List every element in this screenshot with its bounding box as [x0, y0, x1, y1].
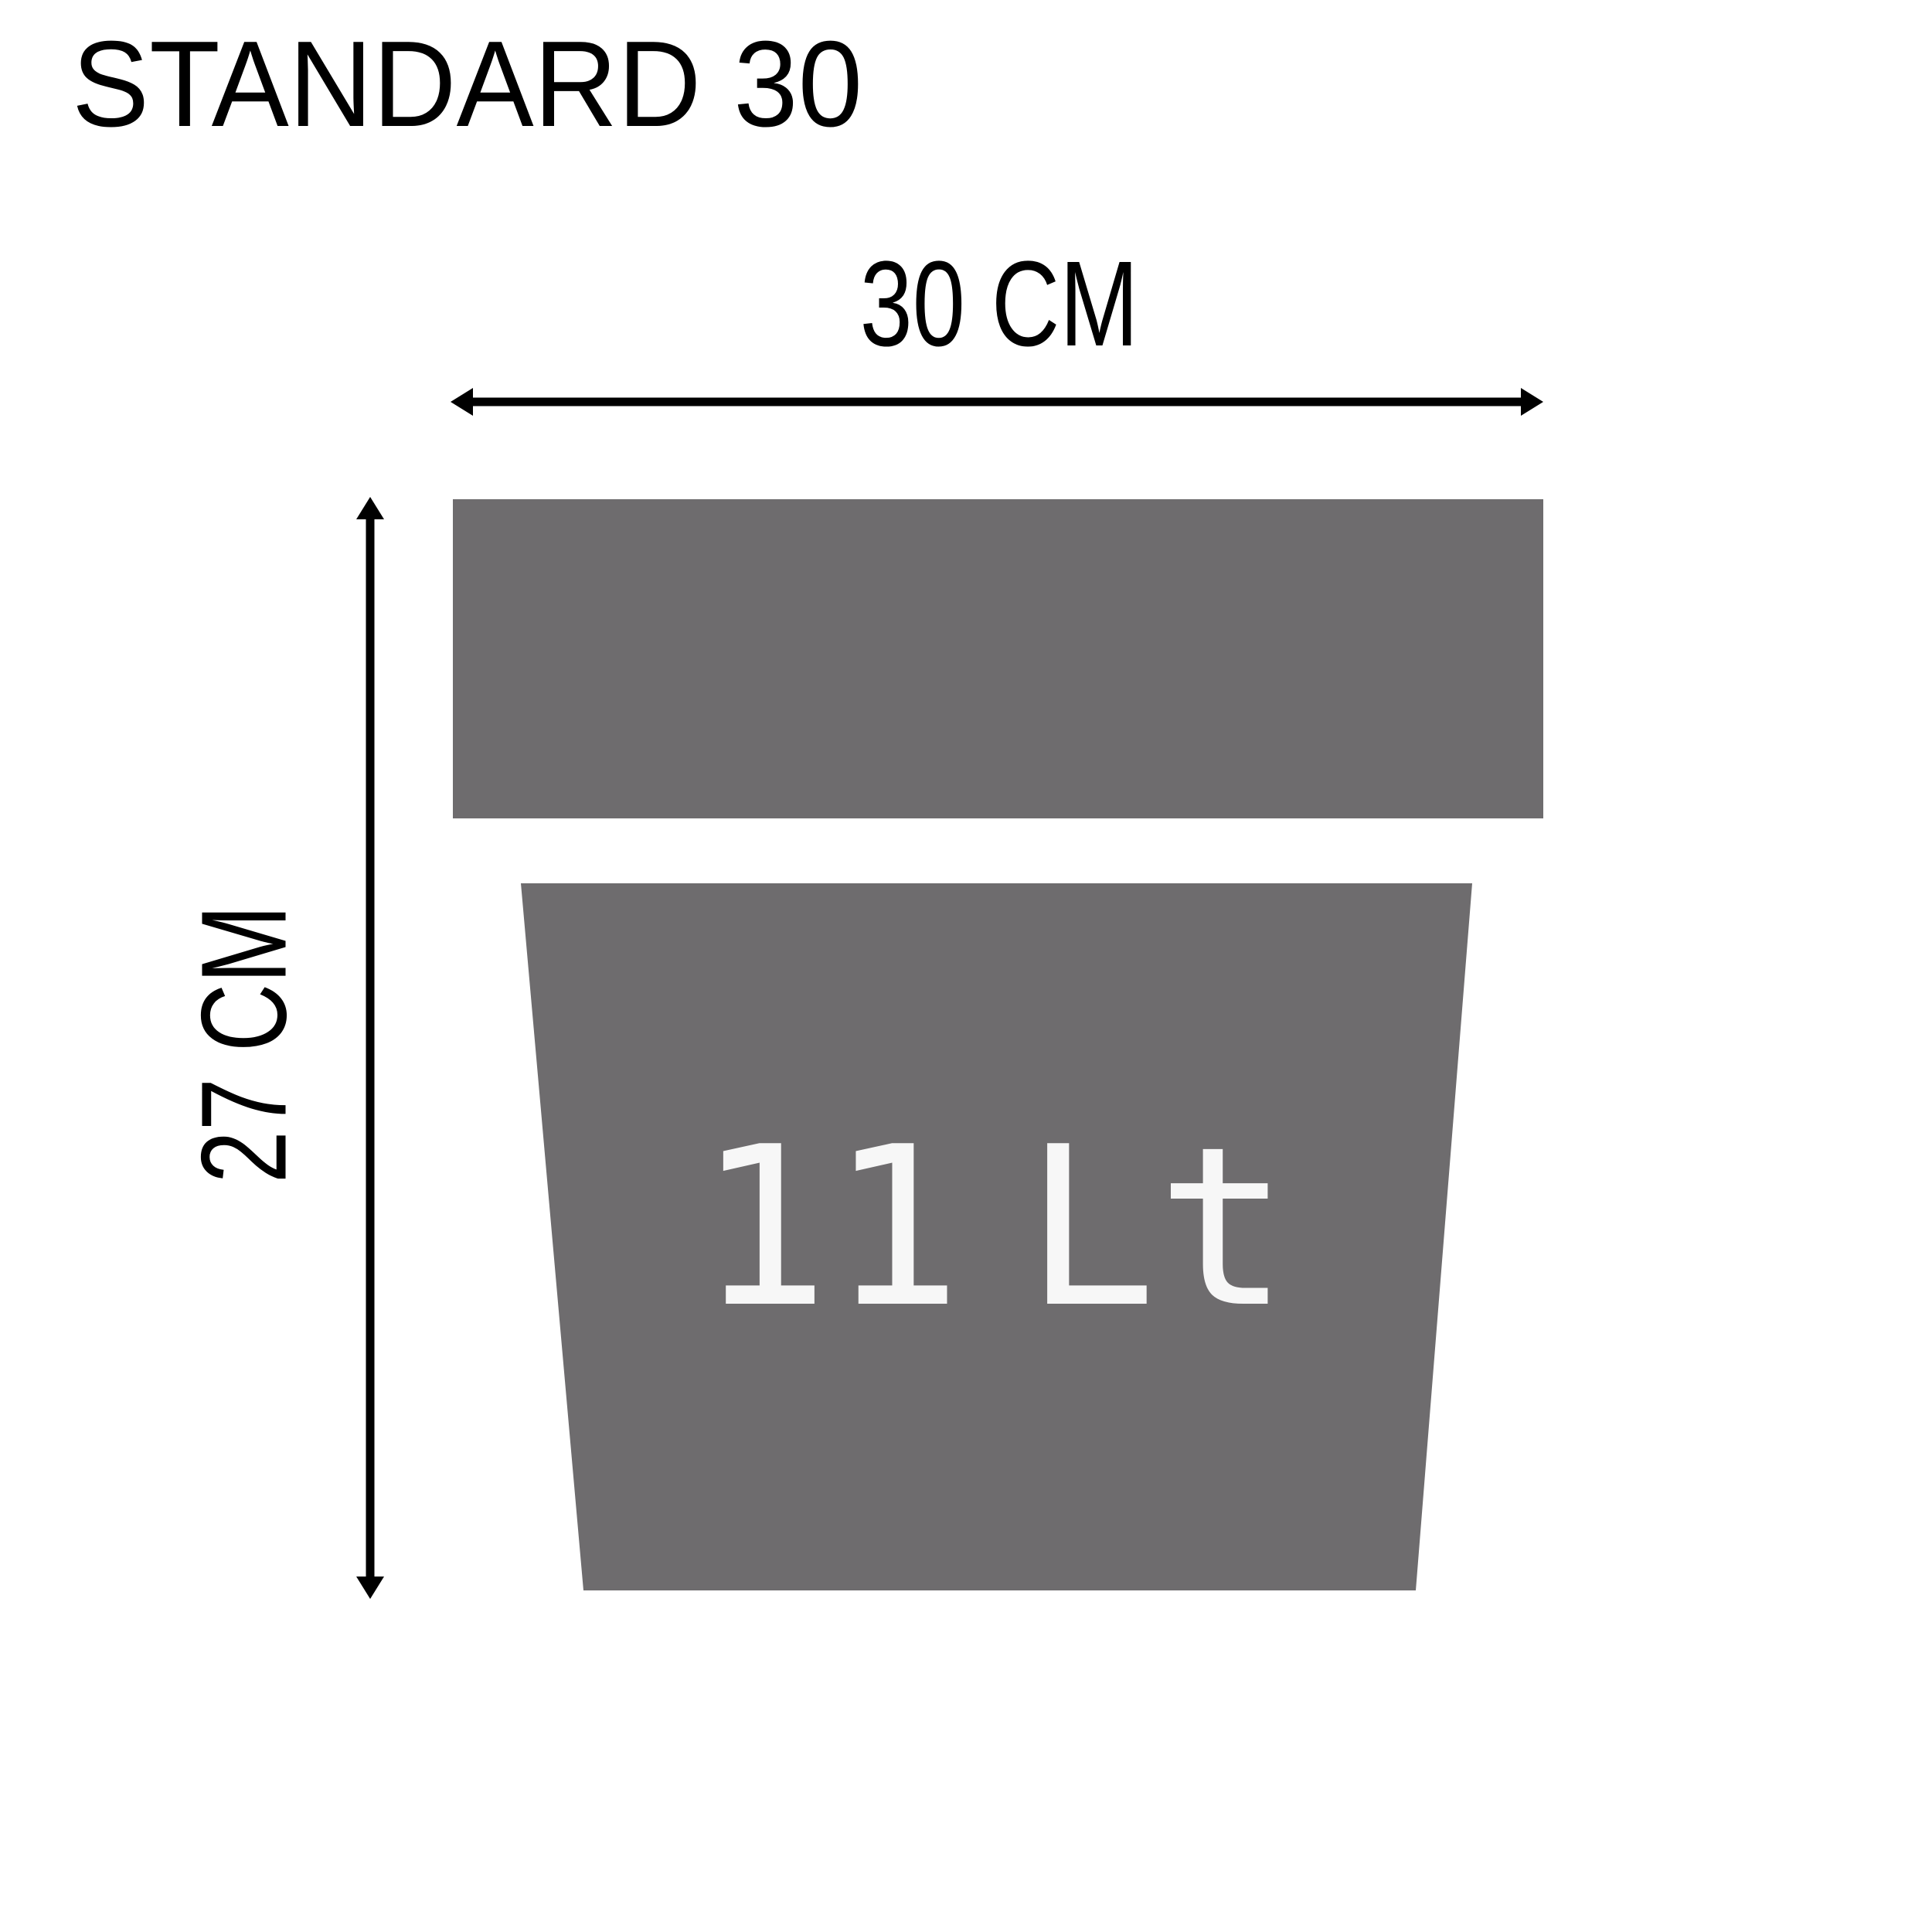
page-title: STANDARD 30 [72, 23, 862, 145]
width-arrow-left-head [451, 388, 473, 416]
capacity-label: 11 Lt [697, 1118, 1290, 1338]
pot-dimension-diagram: STANDARD 30 30 CM 27 CM 11 Lt [0, 0, 1932, 1932]
pot-rim-shape [453, 499, 1543, 818]
width-dimension-label: 30 CM [860, 243, 1139, 365]
height-dimension-label: 27 CM [184, 905, 305, 1184]
height-dimension-arrow [356, 497, 384, 1599]
height-arrow-bottom-head [356, 1577, 384, 1599]
height-arrow-top-head [356, 497, 384, 519]
width-dimension-arrow [451, 388, 1543, 416]
width-arrow-right-head [1521, 388, 1543, 416]
